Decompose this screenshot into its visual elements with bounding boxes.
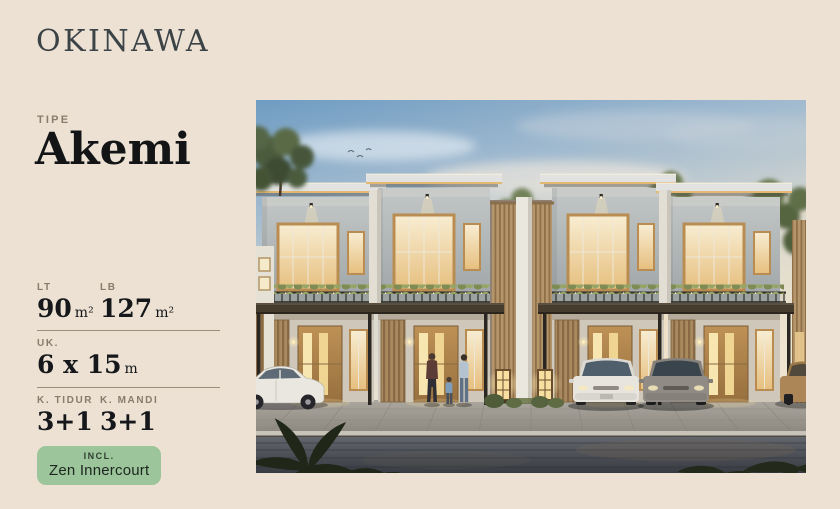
divider <box>37 330 220 331</box>
spec-row-area: LT 90m² LB 127m² <box>37 282 220 322</box>
spec-value-ktidur: 3+1 <box>37 409 100 435</box>
brochure-page: { "page": { "background_color": "#ECE1D3… <box>0 0 840 509</box>
spec-value-uk: 6 x 15m <box>37 352 138 378</box>
brand-title: OKINAWA <box>36 24 210 59</box>
spec-item-lb: LB 127m² <box>100 282 174 322</box>
hero-image <box>256 100 806 473</box>
spec-unit-lb: m² <box>155 305 174 321</box>
spec-unit-uk: m <box>125 361 138 377</box>
spec-label-ktidur: K. TIDUR <box>37 395 100 406</box>
spec-value-lb: 127m² <box>100 296 174 322</box>
spec-item-ktidur: K. TIDUR 3+1 <box>37 395 100 435</box>
badge-value: Zen Innercourt <box>49 462 149 479</box>
spec-value-kmandi: 3+1 <box>100 409 163 435</box>
spec-label-uk: UK. <box>37 338 138 349</box>
spec-value-lt: 90m² <box>37 296 100 322</box>
spec-label-lt: LT <box>37 282 100 293</box>
spec-unit-lt: m² <box>75 305 94 321</box>
spec-number-uk: 6 x 15 <box>37 350 122 379</box>
spec-label-kmandi: K. MANDI <box>100 395 163 406</box>
spec-list: LT 90m² LB 127m² UK. 6 x 15m K. TIDUR 3+… <box>37 282 220 485</box>
badge-label: INCL. <box>49 451 149 461</box>
spec-item-kmandi: K. MANDI 3+1 <box>100 395 163 435</box>
spec-number-ktidur: 3+1 <box>37 407 93 436</box>
type-block: TIPE Akemi <box>37 114 191 173</box>
spec-item-lt: LT 90m² <box>37 282 100 322</box>
type-name: Akemi <box>35 127 191 173</box>
spec-row-size: UK. 6 x 15m <box>37 338 220 378</box>
spec-row-rooms: K. TIDUR 3+1 K. MANDI 3+1 <box>37 395 220 435</box>
spec-label-lb: LB <box>100 282 174 293</box>
spec-item-uk: UK. 6 x 15m <box>37 338 138 378</box>
incl-badge: INCL. Zen Innercourt <box>37 446 161 485</box>
divider <box>37 387 220 388</box>
spec-number-lb: 127 <box>100 294 152 323</box>
spec-number-lt: 90 <box>37 294 72 323</box>
hero-illustration <box>256 100 806 473</box>
spec-number-kmandi: 3+1 <box>100 407 156 436</box>
